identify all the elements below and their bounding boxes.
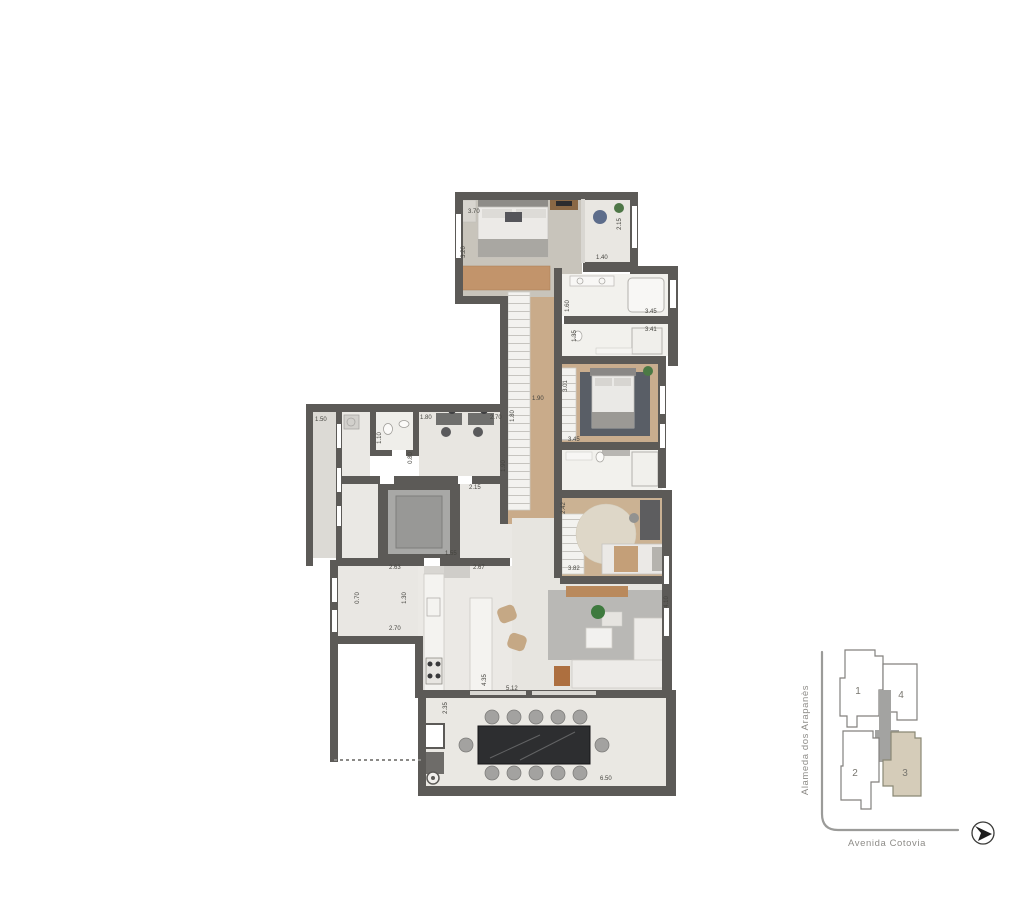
vanity [566,452,592,460]
dimension-label: 1.35 [572,330,578,342]
coffee-table [586,628,612,648]
dimension-label: 1.55 [445,551,457,557]
dimension-label: 3.41 [645,327,657,333]
dimension-label: 6.50 [600,776,612,782]
dimension-label: 1.10 [377,432,383,444]
grill-center [431,776,435,780]
dimension-label: 4.10 [664,596,670,608]
sink [399,421,409,428]
blanket [614,546,638,572]
dimension-label: 5.12 [506,686,518,692]
plant [643,366,653,376]
compass-icon [972,822,994,844]
blanket [592,412,634,428]
dimension-label: 3.45 [645,309,657,315]
side-table [554,666,570,686]
dimension-label: 2.70 [389,626,401,632]
desk [436,413,462,425]
chair [473,427,483,437]
dimension-label: 0.80 [408,452,414,464]
unit-1-label: 1 [855,686,861,697]
dimension-label: 3.01 [563,380,569,392]
sideboard [566,586,628,597]
dimension-label: 3.82 [568,566,580,572]
coffee-table [602,612,622,626]
unit-3-label: 3 [902,768,908,779]
island-counter [470,598,492,692]
burner [436,674,441,679]
unit-2-label: 2 [852,768,858,779]
burner [428,662,433,667]
street-name-vertical: Alameda dos Arapanès [800,685,811,795]
keymap-unit-2 [841,731,879,809]
plant [591,605,605,619]
wardrobe [560,368,576,440]
dimension-label: 1.80 [420,415,432,421]
dimension-label: 4.35 [482,674,488,686]
service-area [344,415,359,429]
dimension-label: 1.60 [565,300,571,312]
dimension-label: 1.80 [510,410,516,422]
desk [640,500,660,540]
dimension-label: 3.45 [568,437,580,443]
desk-chair [629,513,639,523]
toilet [384,424,393,435]
floorplan-canvas: 3.70 3.20 2.15 1.40 1.60 3.45 3.41 1.35 … [0,0,1024,902]
dimension-label: 3.20 [461,246,467,258]
shower [632,452,658,486]
dimension-label: 1.50 [315,417,327,423]
dimension-label: 2.35 [443,702,449,714]
sofa [572,660,666,688]
keymap-core [879,690,891,730]
pillow [652,547,662,571]
pillow [595,378,612,386]
side-terrace-floor [313,412,336,558]
burner [436,662,441,667]
cushion [505,212,522,222]
keymap-unit-1 [840,650,883,727]
toilet [596,452,604,462]
balcony-pouf [593,210,607,224]
dimension-label: 2.42 [561,502,567,514]
dimension-label: 2.67 [473,565,485,571]
blanket [478,239,548,257]
dimension-label: 2.70 [490,415,502,421]
dimension-label: 1.30 [402,592,408,604]
dimension-label: 1.40 [596,255,608,261]
pillow [614,378,631,386]
dining-table [478,726,590,764]
dimension-label: 1.90 [501,460,507,472]
burner [428,674,433,679]
washer [344,415,359,429]
vanity [570,276,614,286]
vanity [596,348,632,354]
sofa-chaise [634,618,666,662]
street-name-horizontal: Avenida Cotovia [848,838,926,849]
dimension-label: 2.63 [389,565,401,571]
dimension-label: 3.70 [468,209,480,215]
fridge [444,566,470,578]
suite2-bed-headboard [590,368,636,376]
unit-4-label: 4 [898,690,904,701]
chair [441,427,451,437]
stove [426,658,442,684]
plant [614,203,624,213]
master-wardrobe [462,266,550,290]
dimension-label: 0.70 [355,592,361,604]
bathtub [628,278,664,312]
dimension-label: 1.90 [532,396,544,402]
dimension-label: 2.15 [617,218,623,230]
key-map: 1 4 2 3 Alameda dos Arapanès Avenida Cot… [800,650,994,849]
tv [556,201,572,206]
dimension-label: 2.15 [469,485,481,491]
corridor-closet [508,292,530,510]
elevator-cab [396,496,442,548]
